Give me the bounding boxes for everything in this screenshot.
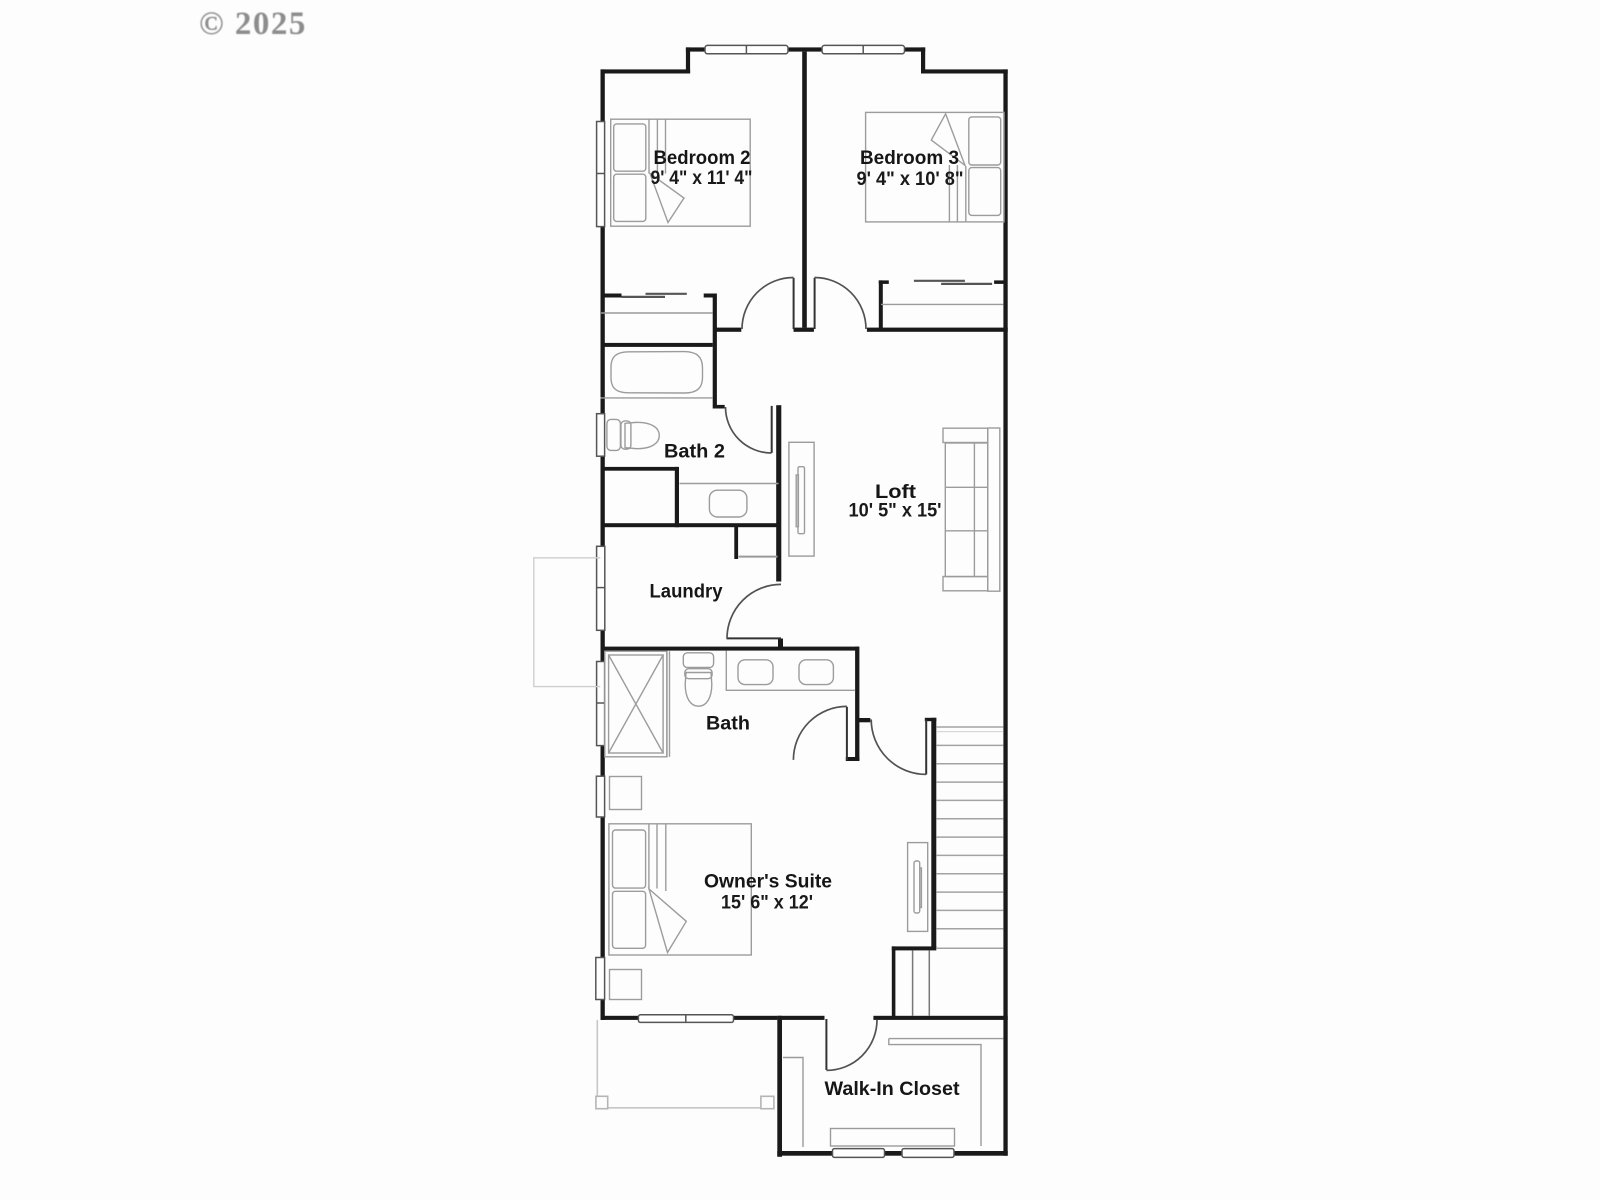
svg-text:Bath 2: Bath 2 xyxy=(664,441,725,463)
svg-text:Owner's Suite: Owner's Suite xyxy=(704,871,832,893)
svg-text:Bath: Bath xyxy=(706,713,750,735)
svg-text:Bedroom 2: Bedroom 2 xyxy=(654,147,751,169)
svg-text:10' 5" x 15': 10' 5" x 15' xyxy=(849,500,942,522)
svg-text:15' 6" x 12': 15' 6" x 12' xyxy=(721,892,813,914)
svg-text:Walk-In Closet: Walk-In Closet xyxy=(825,1078,961,1100)
svg-text:9' 4" x 11' 4": 9' 4" x 11' 4" xyxy=(651,167,753,189)
svg-text:© 2025: © 2025 xyxy=(199,6,307,42)
svg-text:Bedroom 3: Bedroom 3 xyxy=(860,147,959,169)
svg-text:Laundry: Laundry xyxy=(650,581,723,603)
svg-text:9' 4" x 10' 8": 9' 4" x 10' 8" xyxy=(857,168,964,190)
